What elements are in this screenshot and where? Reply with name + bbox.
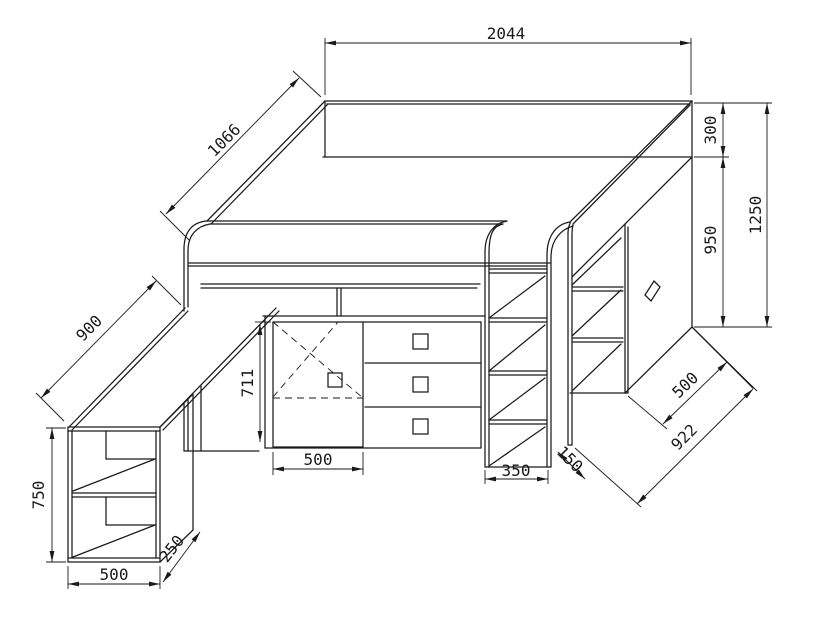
drawing-canvas: 2044 1066 900 300 950 1250 711 500 (0, 0, 813, 619)
dim-label-wardrobe-height: 950 (701, 226, 720, 255)
dim-label-bed-length: 2044 (487, 24, 526, 43)
technical-drawing: 2044 1066 900 300 950 1250 711 500 (0, 0, 813, 619)
dim-label-rail-height: 300 (701, 116, 720, 145)
dim-label-bookcase-width: 500 (100, 565, 129, 584)
dim-label-cabinet-height: 711 (238, 369, 257, 398)
dim-label-ladder-width: 350 (502, 461, 531, 480)
dim-label-bookcase-height: 750 (29, 481, 48, 510)
dim-label-cabinet-width: 500 (304, 450, 333, 469)
dim-label-total-height: 1250 (746, 196, 765, 235)
